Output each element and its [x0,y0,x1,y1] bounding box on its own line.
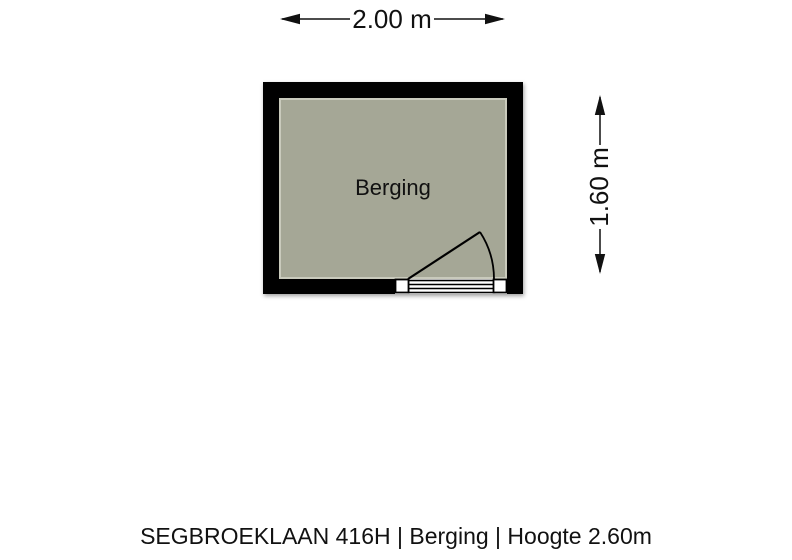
height-dimension-label: 1.60 m [586,147,612,227]
caption: SEGBROEKLAAN 416H | Berging | Hoogte 2.6… [0,523,792,549]
floorplan-page: Berging 2.00 m 1.60 m SEGBROEKLAAN 416H … [0,0,792,560]
room-label: Berging [355,177,431,199]
width-arrowhead-left [280,14,300,24]
floorplan-drawing [0,0,792,560]
width-arrowhead-right [485,14,505,24]
height-arrowhead-top [595,95,605,115]
door-threshold [409,281,495,293]
width-dimension-label: 2.00 m [352,6,432,32]
door-jamb-right [494,280,507,293]
door-jamb-left [396,280,409,293]
height-arrowhead-bottom [595,254,605,274]
